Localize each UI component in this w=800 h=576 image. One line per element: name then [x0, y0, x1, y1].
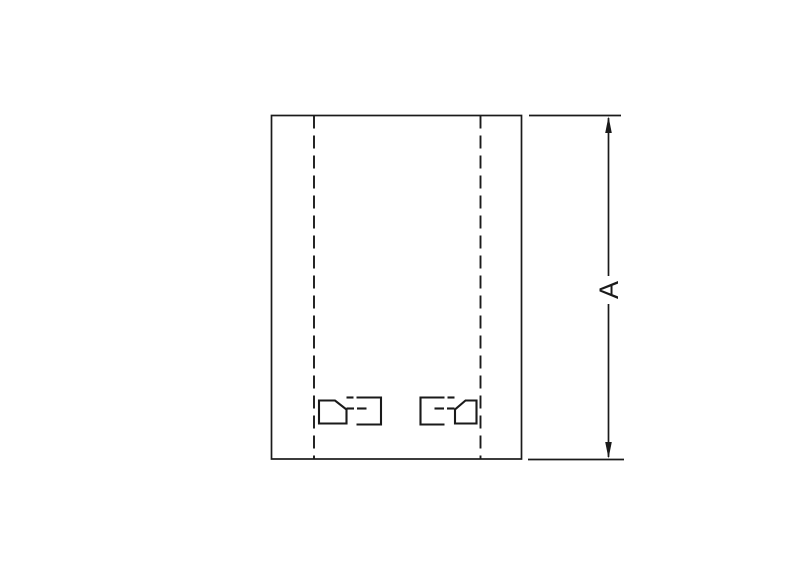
latch-right-chamfer-block [455, 401, 477, 424]
dimension-label: A [594, 281, 624, 299]
dimension-arrow-up-icon [605, 117, 612, 134]
latch-detail-left [319, 398, 381, 425]
latch-left-chamfer-block [319, 401, 347, 424]
body-outline-rectangle [272, 116, 522, 460]
drawing-canvas: A [0, 0, 800, 576]
technical-drawing: A [0, 0, 800, 576]
dimension-arrow-down-icon [605, 442, 612, 459]
latch-right-bracket [421, 398, 445, 425]
latch-left-bracket [357, 398, 382, 425]
latch-detail-right [421, 398, 477, 425]
